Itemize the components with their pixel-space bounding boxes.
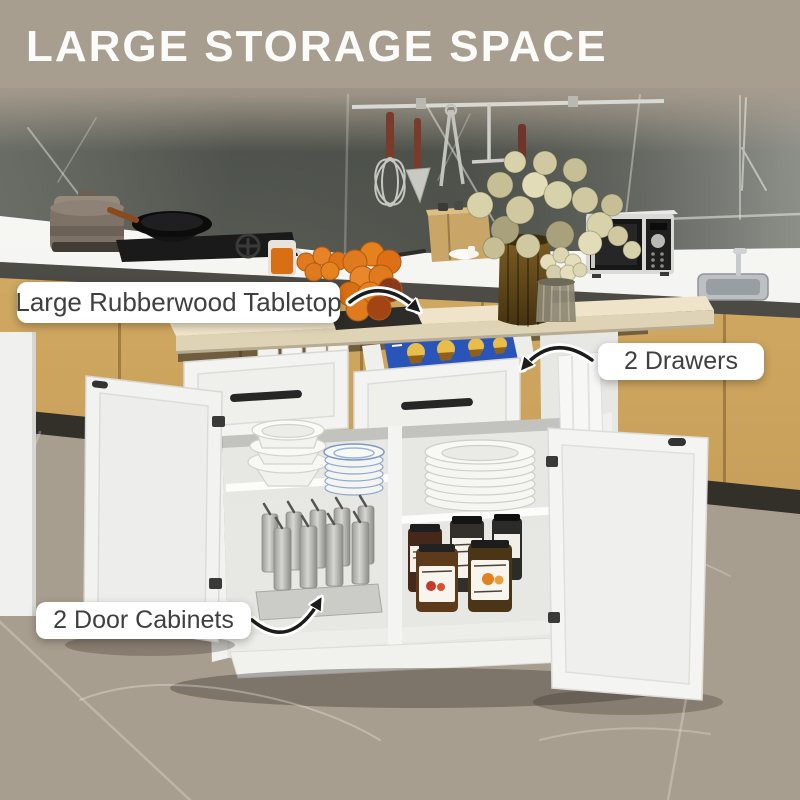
callout-cabinets: 2 Door Cabinets [36,602,251,639]
door-hinge [546,456,558,467]
kitchen-scene [0,0,800,800]
plates-stack-small [324,444,384,495]
door-hinge [548,612,560,623]
product-feature-image: LARGE STORAGE SPACE Large Rubberwood Tab… [0,0,800,800]
white-appliance [0,332,36,616]
plates-stack-large [425,440,535,511]
callout-tabletop-label: Large Rubberwood Tabletop [15,287,341,318]
callout-drawers: 2 Drawers [598,343,764,380]
door-hinge [209,578,222,589]
rice-cooker [50,190,124,252]
callout-drawers-label: 2 Drawers [624,347,738,376]
callout-cabinets-label: 2 Door Cabinets [53,606,234,635]
juice-glass [268,240,301,276]
callout-tabletop: Large Rubberwood Tabletop [17,282,340,323]
kitchen-sink [698,248,768,300]
door-hinge [212,416,225,427]
door-bumper [668,438,686,446]
counter-oranges [297,247,347,281]
flower-bouquet [467,151,641,259]
cabinet-divider [388,425,402,650]
cabinet-door-right [546,428,708,700]
